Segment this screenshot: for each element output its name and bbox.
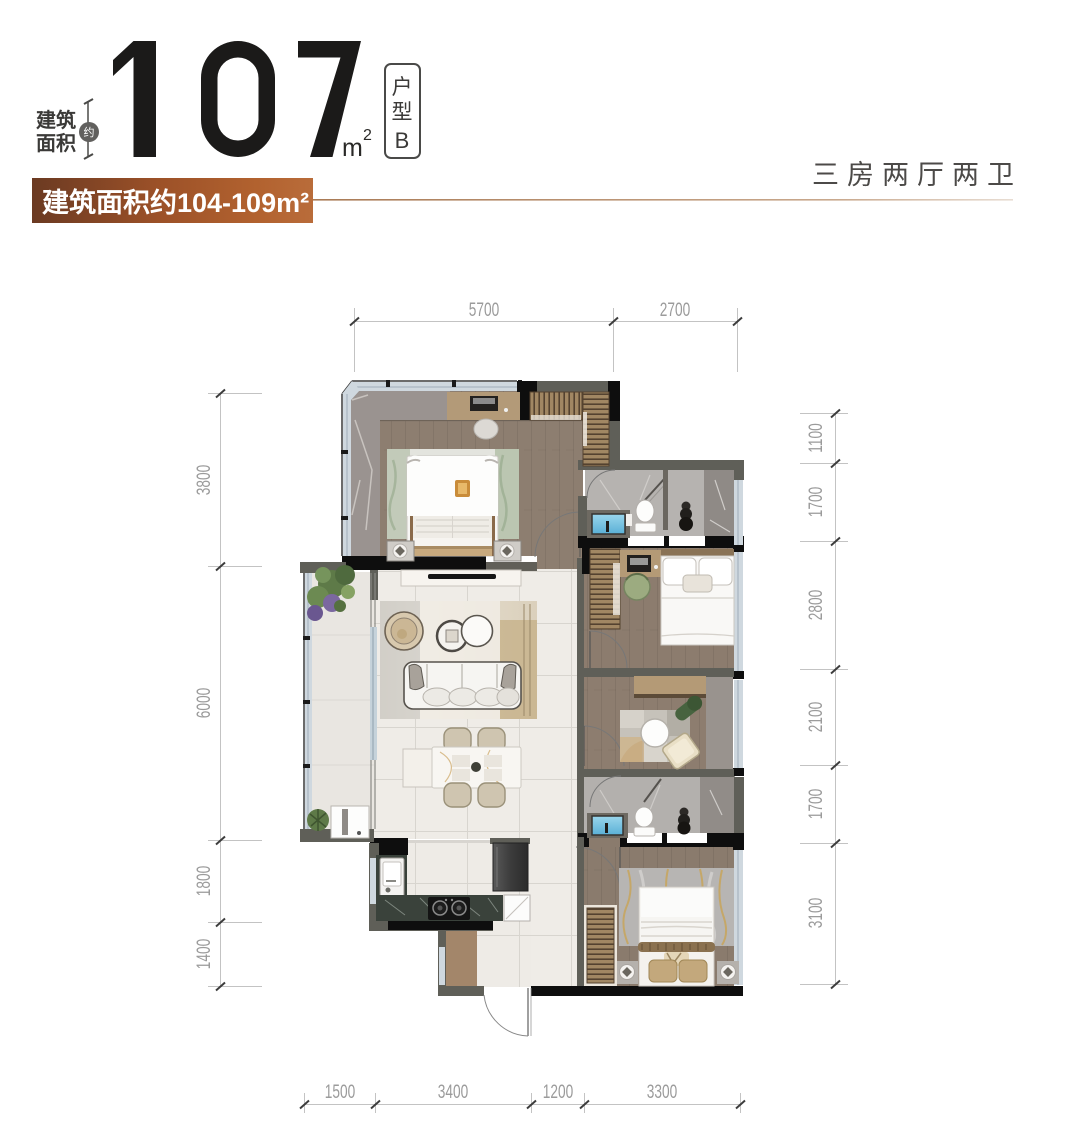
svg-text:B: B <box>395 128 410 153</box>
svg-text:面积: 面积 <box>36 132 76 155</box>
svg-text:1200: 1200 <box>543 1081 573 1103</box>
svg-text:3800: 3800 <box>193 465 215 495</box>
svg-text:1700: 1700 <box>805 487 827 517</box>
svg-text:3300: 3300 <box>647 1081 677 1103</box>
svg-text:1100: 1100 <box>805 423 827 452</box>
svg-text:2: 2 <box>363 127 372 144</box>
svg-text:约: 约 <box>84 126 95 139</box>
svg-text:6000: 6000 <box>193 688 215 718</box>
svg-text:1400: 1400 <box>193 939 215 969</box>
svg-text:3400: 3400 <box>438 1081 468 1103</box>
svg-text:户: 户 <box>392 76 413 99</box>
svg-text:5700: 5700 <box>469 299 499 321</box>
svg-text:3100: 3100 <box>805 898 827 928</box>
svg-text:1800: 1800 <box>193 866 215 896</box>
svg-text:1500: 1500 <box>325 1081 355 1103</box>
svg-text:三房两厅两卫: 三房两厅两卫 <box>812 160 1022 190</box>
svg-text:1700: 1700 <box>805 789 827 819</box>
svg-text:2100: 2100 <box>805 702 827 732</box>
svg-text:建筑: 建筑 <box>36 108 76 132</box>
svg-text:建筑面积约104-109m²: 建筑面积约104-109m² <box>42 187 309 218</box>
svg-text:2800: 2800 <box>805 590 827 620</box>
svg-text:型: 型 <box>392 101 413 124</box>
svg-text:m: m <box>342 134 363 162</box>
svg-text:2700: 2700 <box>660 299 690 321</box>
